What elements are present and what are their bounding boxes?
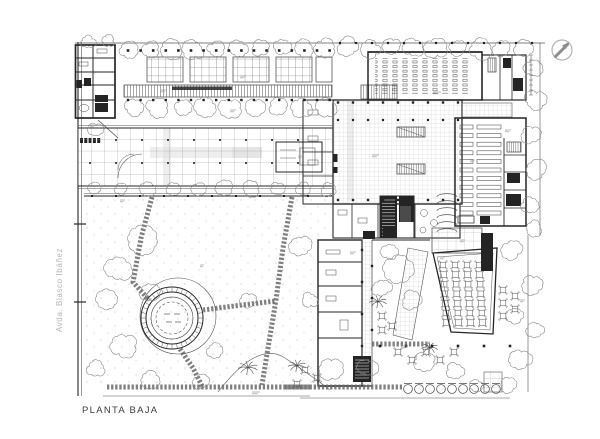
reading-room bbox=[455, 118, 526, 226]
plan-title: PLANTA BAJA bbox=[82, 405, 158, 416]
esplanade-paving-grid bbox=[78, 126, 332, 189]
north-arrow-icon bbox=[552, 40, 572, 60]
auditorium-stacks-room bbox=[368, 52, 482, 100]
pergola-walkway bbox=[124, 85, 332, 97]
street-label: Avda. Blasco Ibáñez bbox=[55, 248, 64, 332]
floor-plan-drawing: PLANTA BAJA Avda. Blasco Ibáñez bbox=[0, 0, 600, 439]
west-wing-and-corridor bbox=[318, 240, 372, 386]
drawing-sheet: PLANTA BAJA Avda. Blasco Ibáñez bbox=[0, 0, 600, 439]
parking-stall-rows bbox=[147, 57, 332, 82]
garden-ground bbox=[84, 196, 332, 392]
